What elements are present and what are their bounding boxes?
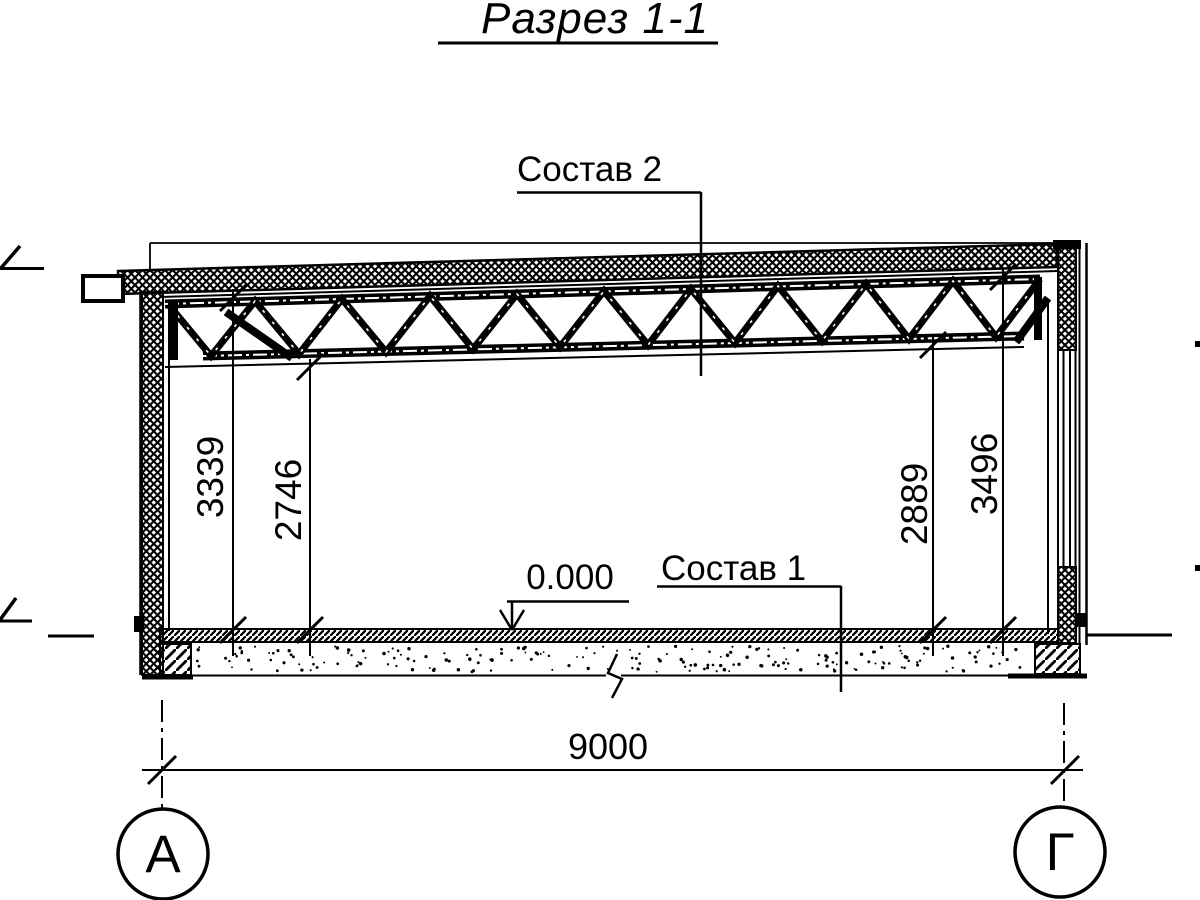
axis-label-right: Г [1010, 802, 1110, 900]
right-sill-wall [1058, 567, 1076, 643]
right-wall [1048, 240, 1087, 645]
subbase [192, 645, 1021, 698]
section-title: Разрез 1-1 [395, 0, 795, 44]
left-footing [160, 644, 191, 675]
dimension-left-to-bottom-chord: 2746 [269, 425, 309, 575]
break-symbol [608, 654, 622, 698]
elevation-zero-value: 0.000 [510, 558, 630, 598]
subbase-stipple [196, 645, 1021, 674]
right-footing [1035, 644, 1080, 674]
right-wall-flashing [1076, 613, 1086, 627]
callout-floor-composition: Состав 1 [661, 549, 851, 589]
architectural-section-drawing: Разрез 1-1 Состав 2 Состав 1 0.000 3339 … [0, 0, 1200, 900]
left-wall [134, 291, 169, 675]
dimension-left-to-top-chord: 3339 [191, 402, 231, 552]
callout-roof-composition: Состав 2 [517, 150, 707, 190]
window-glazing [1058, 350, 1076, 567]
roof-truss [165, 277, 1048, 367]
right-parapet [1058, 248, 1076, 350]
axis-label-left: А [113, 804, 213, 900]
dimension-span: 9000 [548, 726, 668, 768]
elevation-zero-mark [500, 601, 629, 630]
dimension-right-to-top-chord: 3496 [965, 399, 1005, 549]
dimension-right-to-bottom-chord: 2889 [895, 429, 935, 579]
eave-fascia [83, 276, 123, 301]
left-wall-flashing [134, 616, 144, 632]
